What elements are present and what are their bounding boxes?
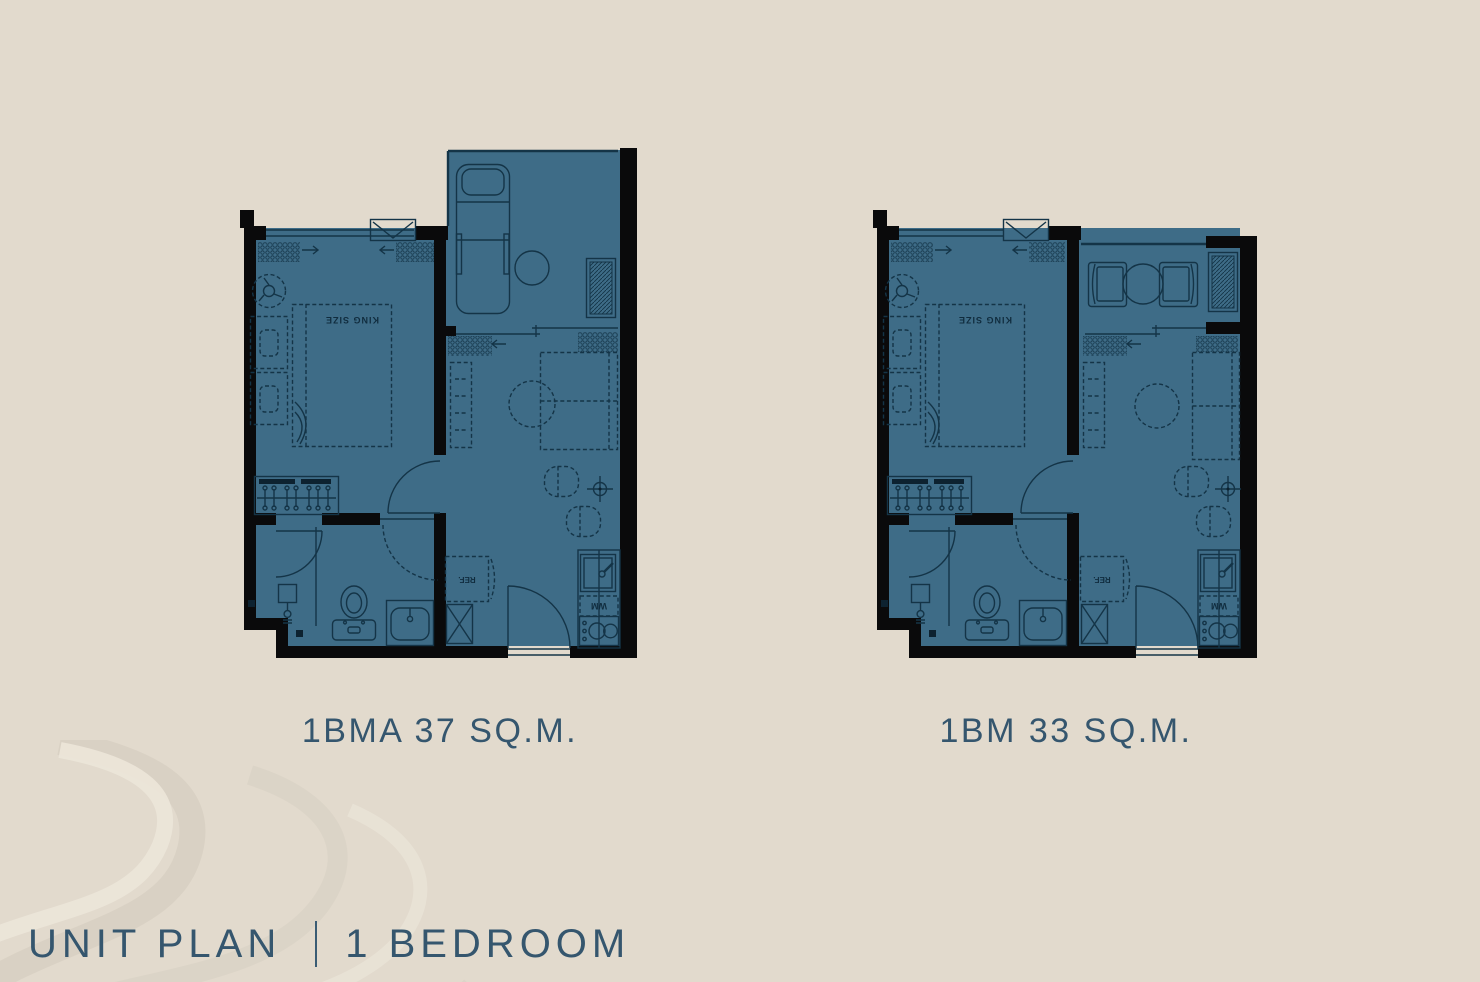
- ref-label: REF.: [458, 575, 475, 584]
- page-title-main: UNIT PLAN: [28, 922, 281, 967]
- king-size-label: KING SIZE: [325, 315, 379, 325]
- floor-fill: [244, 150, 620, 646]
- floor-plan-1bm: KING SIZE REF. WM: [868, 200, 1264, 668]
- ac-unit-icon: [1209, 253, 1238, 312]
- wm-label: WM: [591, 601, 607, 611]
- unit-plan-page: KING SIZE REF. WM: [0, 0, 1480, 982]
- page-title-sub: 1 BEDROOM: [345, 922, 630, 967]
- plan-label-1bm: 1BM 33 SQ.M.: [868, 712, 1264, 751]
- floor-fill: [877, 228, 1240, 646]
- title-separator: [315, 921, 317, 967]
- plan-label-1bma: 1BMA 37 SQ.M.: [236, 712, 644, 751]
- wm-label: WM: [1211, 601, 1227, 611]
- ref-label: REF.: [1093, 575, 1110, 584]
- floor-plan-1bma: KING SIZE REF. WM: [236, 140, 644, 668]
- king-size-label: KING SIZE: [958, 315, 1012, 325]
- ac-unit-icon: [587, 259, 616, 318]
- page-title: UNIT PLAN 1 BEDROOM: [28, 918, 630, 970]
